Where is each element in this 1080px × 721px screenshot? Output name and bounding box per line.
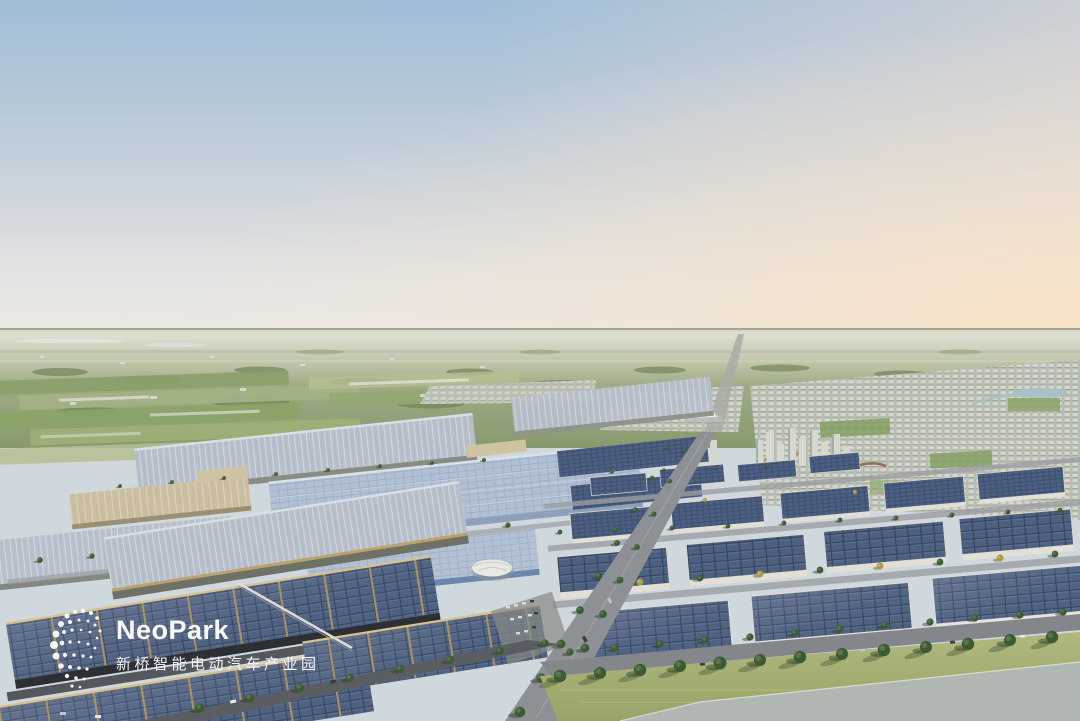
aerial-scene	[0, 0, 1080, 721]
aerial-render-screenshot: NeoPark 新桥智能电动汽车产业园	[0, 0, 1080, 721]
sky	[0, 0, 1080, 346]
disc-landmark	[471, 560, 513, 582]
